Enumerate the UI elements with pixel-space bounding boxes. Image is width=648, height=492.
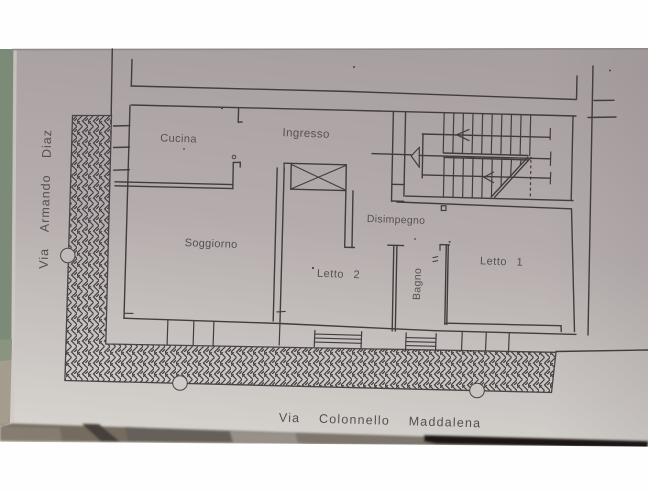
svg-text:Disimpegno: Disimpegno <box>367 213 426 227</box>
svg-text:Letto 2: Letto 2 <box>317 268 361 281</box>
svg-text:Ingresso: Ingresso <box>282 127 330 141</box>
svg-text:Soggiorno: Soggiorno <box>184 237 237 251</box>
svg-text:Letto 1: Letto 1 <box>480 255 524 268</box>
svg-text:Bagno: Bagno <box>411 268 424 301</box>
svg-text:Cucina: Cucina <box>160 132 198 145</box>
